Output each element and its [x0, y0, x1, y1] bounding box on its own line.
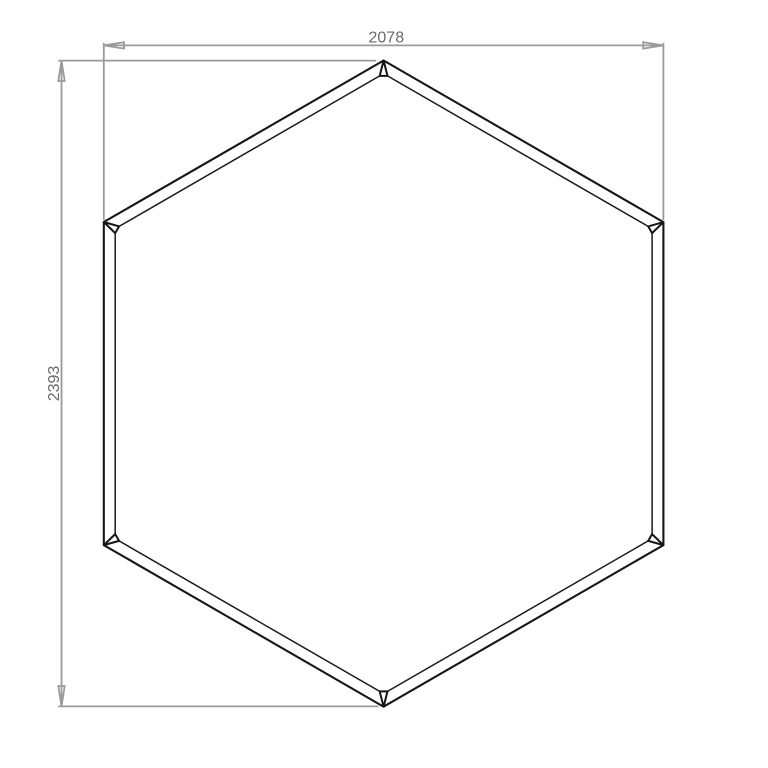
svg-text:2393: 2393 — [46, 366, 63, 402]
svg-text:2078: 2078 — [369, 30, 405, 47]
